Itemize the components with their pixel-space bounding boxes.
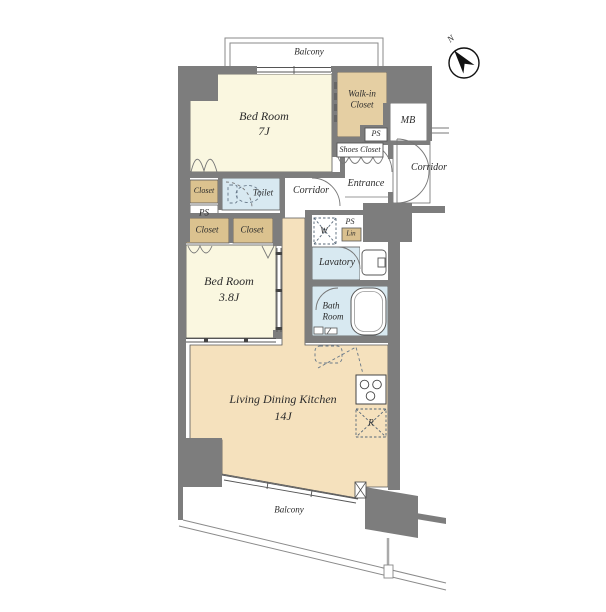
balcony-drain <box>384 538 393 578</box>
label-linen: Lin <box>346 231 355 238</box>
label-walkin-line2: Closet <box>350 101 373 110</box>
label-corridor-outer: Corridor <box>411 163 447 173</box>
utility-lines <box>430 128 449 133</box>
washbasin-icon <box>362 250 386 275</box>
label-ldk-name: Living Dining Kitchen <box>229 393 336 405</box>
label-toilet: Toilet <box>253 189 273 198</box>
label-ps-lavatory: PS <box>346 218 355 226</box>
label-closet-right: Closet <box>240 226 263 235</box>
label-bedroom1-size: 7J <box>258 125 269 137</box>
label-shoes-closet: Shoes Closet <box>339 146 380 154</box>
label-balcony-top: Balcony <box>294 48 324 57</box>
label-fridge: R <box>368 419 374 428</box>
label-closet-left: Closet <box>195 226 218 235</box>
label-washer: W <box>320 227 328 236</box>
label-bedroom2-name: Bed Room <box>204 275 254 287</box>
label-walkin-line1: Walk-in <box>348 90 376 99</box>
label-bath-line1: Bath <box>323 302 340 311</box>
floor-plan-drawing <box>0 0 606 612</box>
label-ps-walkin: PS <box>372 130 381 138</box>
label-ps-left: PS <box>199 209 209 218</box>
floor-plan: Balcony Bed Room 7J Walk-in Closet MB PS… <box>0 0 606 612</box>
label-bedroom1-name: Bed Room <box>239 110 289 122</box>
label-closet-upper: Closet <box>194 187 214 195</box>
stove-icon <box>356 375 386 404</box>
label-bedroom2-size: 3.8J <box>219 291 239 303</box>
label-entrance: Entrance <box>348 179 385 189</box>
label-balcony-bottom: Balcony <box>274 506 304 515</box>
label-lavatory: Lavatory <box>319 258 355 268</box>
compass-north-icon <box>449 46 479 78</box>
shaft-box <box>355 482 366 498</box>
label-ldk-size: 14J <box>274 410 291 422</box>
label-corridor-inner: Corridor <box>293 186 329 196</box>
label-mb: MB <box>401 116 415 126</box>
label-bath-line2: Room <box>323 313 344 322</box>
